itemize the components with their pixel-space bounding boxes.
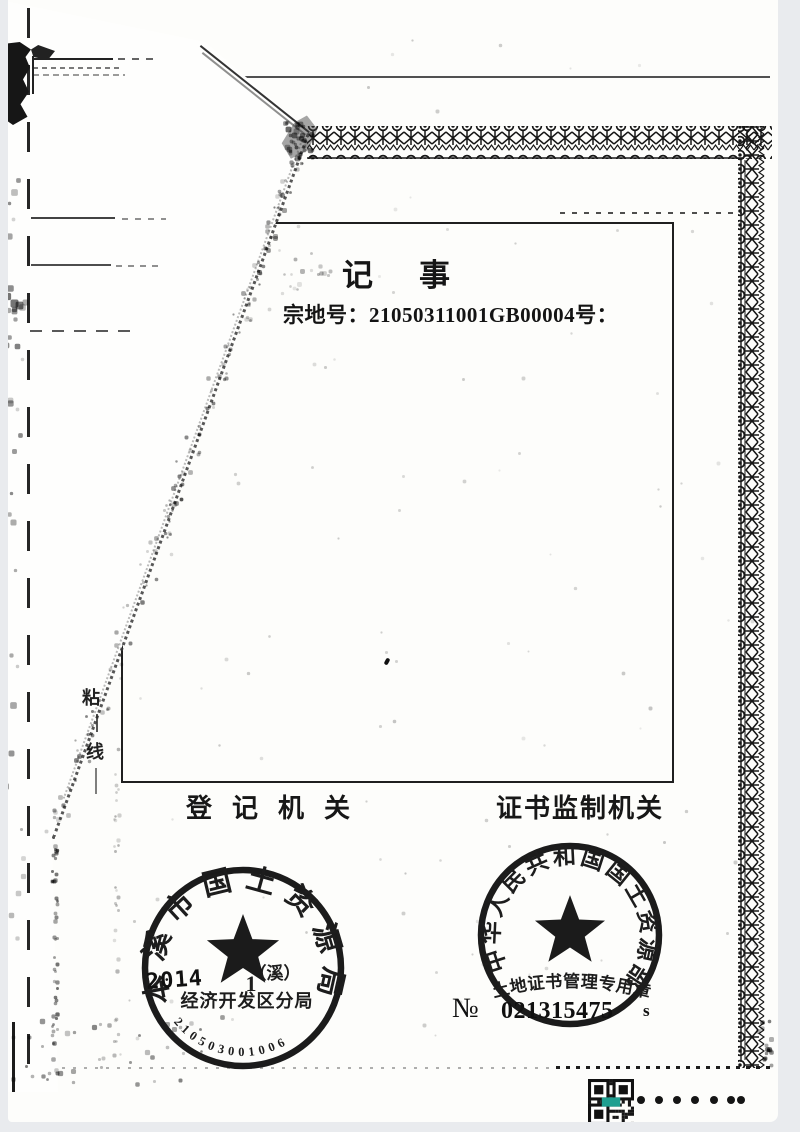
ruled-mark <box>118 58 156 60</box>
seal-bracket-note: （溪） <box>250 963 301 983</box>
ruled-mark <box>31 264 111 266</box>
seal-branch-line: 经济开发区分局 <box>181 990 314 1011</box>
serial-number-prefix: № <box>452 993 479 1025</box>
footer-dot <box>727 1096 735 1104</box>
serial-number-suffix: s <box>643 1001 650 1021</box>
ruled-mark <box>33 74 125 76</box>
footer-dot <box>673 1096 681 1104</box>
ruled-mark <box>30 330 132 332</box>
page-content: 记事 宗地号：21050311001GB00004号： 登记机关 证书监制机关 … <box>8 0 778 1122</box>
record-title: 记事 <box>342 250 496 295</box>
ruled-mark <box>12 1022 15 1092</box>
ruled-mark <box>32 56 34 94</box>
footer-dot <box>710 1096 718 1104</box>
ruled-mark <box>116 265 162 267</box>
page-top-rule <box>243 76 770 78</box>
supervision-authority-label: 证书监制机关 <box>496 788 664 825</box>
parcel-number-line: 宗地号：21050311001GB00004号： <box>283 299 618 329</box>
ruled-mark <box>31 217 115 219</box>
paste-line-tick <box>96 714 98 732</box>
certificate-serial-number: 021315475 <box>501 998 614 1025</box>
border-right-band <box>738 126 768 1068</box>
star-icon <box>535 895 605 962</box>
page-bottom-edge <box>556 1066 772 1069</box>
paste-line-tick <box>95 768 97 794</box>
footer-dot <box>737 1096 745 1104</box>
paste-line-char-top: 粘 <box>82 684 100 710</box>
stamped-year: 2014 <box>145 966 204 995</box>
border-top-band <box>307 126 772 159</box>
binding-dashed-line <box>27 8 30 1070</box>
scanned-certificate-page: { "colors": { "ink": "#1c1c1c", "paper":… <box>0 0 800 1132</box>
certificate-page: 记事 宗地号：21050311001GB00004号： 登记机关 证书监制机关 … <box>8 0 778 1122</box>
ruled-mark <box>33 58 113 60</box>
ruled-mark <box>33 67 119 69</box>
ruled-mark <box>122 218 166 220</box>
footer-dot <box>655 1096 663 1104</box>
dashed-rule <box>560 212 742 214</box>
footer-dot <box>637 1096 645 1104</box>
registration-authority-label: 登记机关 <box>186 788 370 825</box>
paste-line-char-bottom: 线 <box>86 738 104 764</box>
footer-dot <box>691 1096 699 1104</box>
qr-code-icon <box>588 1079 634 1122</box>
